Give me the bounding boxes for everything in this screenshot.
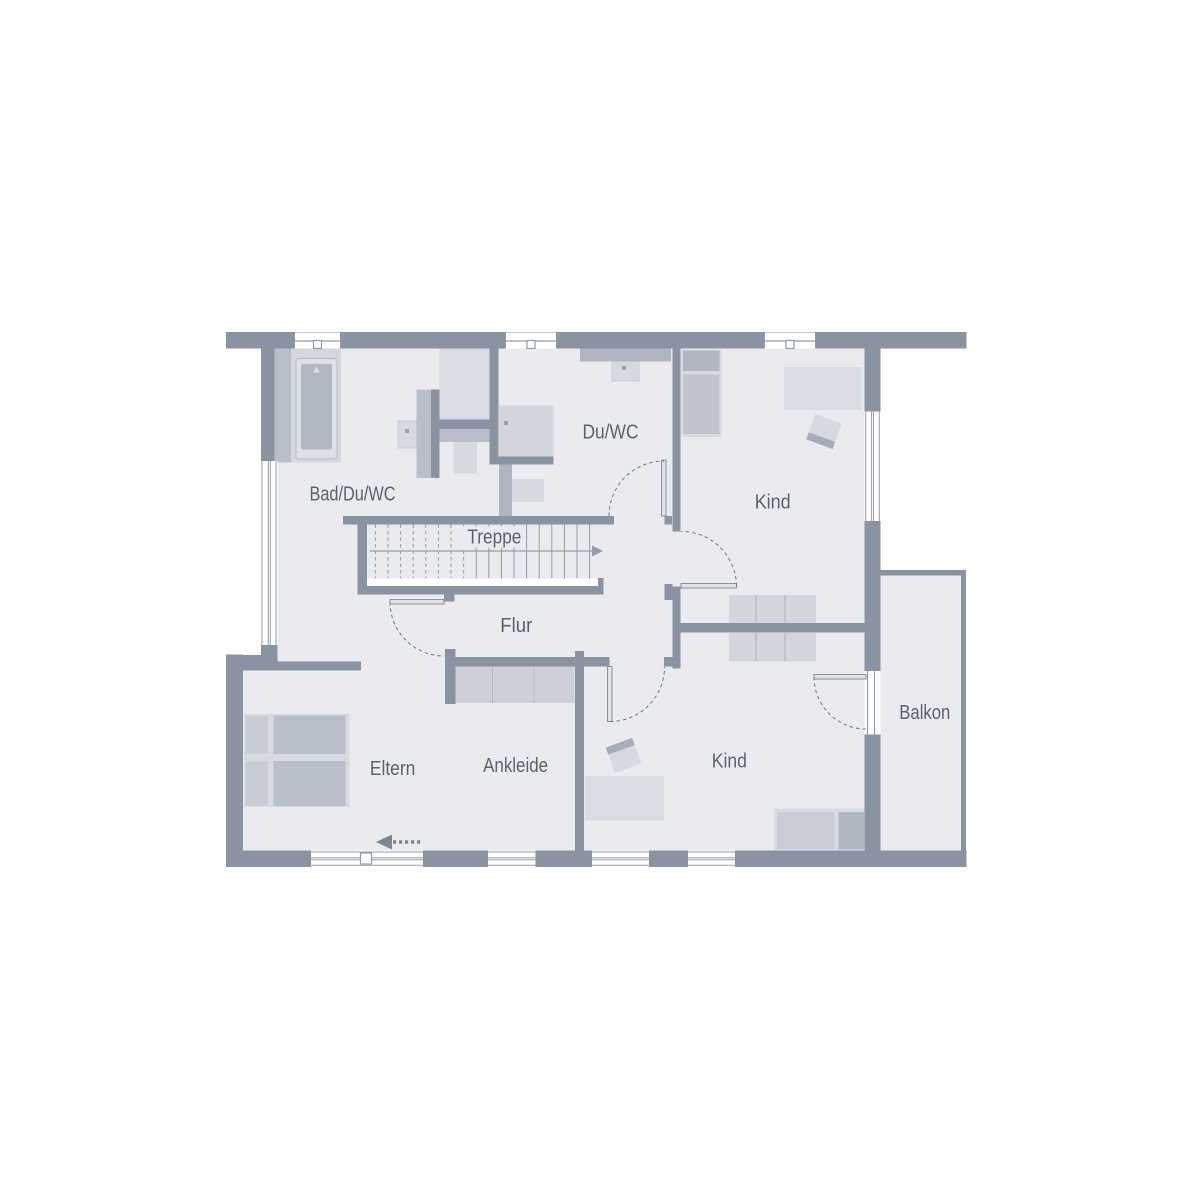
svg-text:Balkon: Balkon <box>899 701 950 724</box>
svg-text:Ankleide: Ankleide <box>483 754 548 777</box>
svg-text:Eltern: Eltern <box>370 757 416 780</box>
svg-text:Flur: Flur <box>500 614 532 637</box>
svg-text:Kind: Kind <box>712 750 747 773</box>
svg-text:Du/WC: Du/WC <box>583 421 639 444</box>
svg-text:Treppe: Treppe <box>467 526 521 549</box>
svg-text:Bad/Du/WC: Bad/Du/WC <box>310 483 396 506</box>
svg-text:Kind: Kind <box>755 491 791 514</box>
